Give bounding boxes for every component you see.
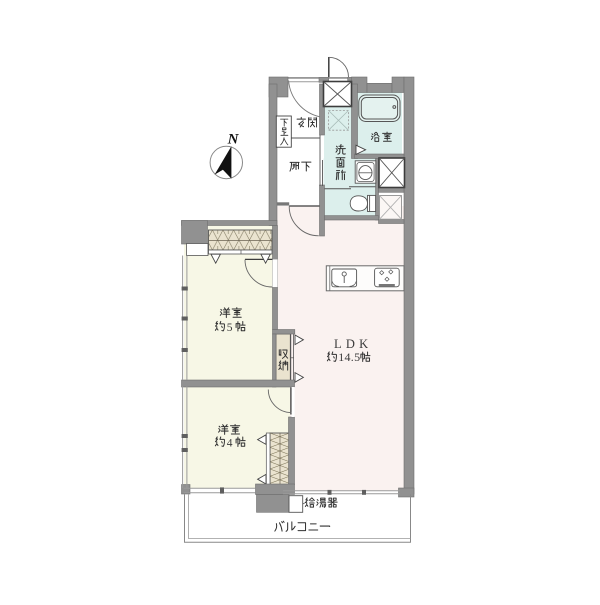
- svg-text:LDK: LDK: [334, 337, 372, 351]
- svg-text:4: 4: [227, 437, 233, 449]
- svg-text:N: N: [227, 132, 240, 148]
- svg-text:14.5: 14.5: [338, 350, 360, 364]
- svg-text:5: 5: [227, 322, 233, 334]
